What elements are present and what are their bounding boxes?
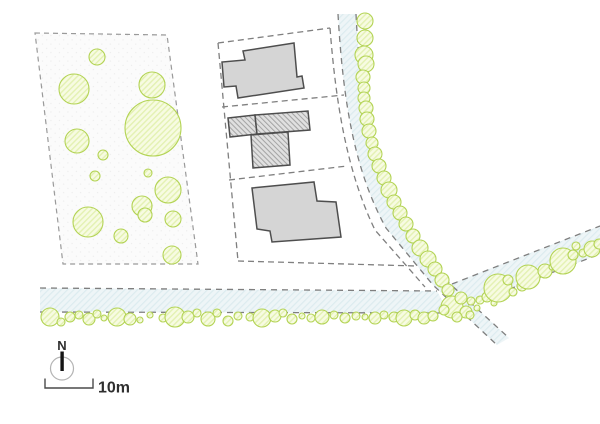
- parcels-layer: [35, 33, 198, 264]
- tree: [428, 311, 438, 321]
- tree: [503, 275, 513, 285]
- tree: [455, 292, 467, 304]
- tree: [165, 211, 181, 227]
- tree: [101, 315, 107, 321]
- main-road-surface: [40, 288, 449, 313]
- scale-bracket: [45, 379, 93, 389]
- building-south: [252, 182, 341, 242]
- tree: [572, 242, 580, 250]
- tree: [234, 312, 242, 320]
- tree: [594, 239, 600, 249]
- tree: [75, 311, 83, 319]
- tree: [439, 305, 449, 315]
- tree: [380, 311, 388, 319]
- wooded-parcel: [35, 33, 198, 264]
- tree: [90, 171, 100, 181]
- tree: [73, 207, 103, 237]
- tree: [114, 229, 128, 243]
- tree: [467, 297, 475, 305]
- tree: [474, 305, 480, 311]
- tree: [340, 313, 350, 323]
- tree: [59, 74, 89, 104]
- block-bottom-boundary: [238, 261, 417, 266]
- north-label: N: [57, 338, 66, 353]
- north-arrow: N: [51, 338, 74, 380]
- tree: [124, 313, 136, 325]
- tree: [182, 311, 194, 323]
- tree: [98, 150, 108, 160]
- tree: [330, 311, 338, 319]
- tree: [93, 310, 101, 318]
- tree: [253, 309, 271, 327]
- lot-divider-south: [229, 166, 347, 180]
- building-north: [222, 43, 304, 98]
- tree: [65, 312, 75, 322]
- tree: [147, 312, 153, 318]
- tree: [568, 250, 578, 260]
- tree: [358, 56, 374, 72]
- compass-needle-icon: [60, 352, 63, 372]
- tree: [287, 314, 297, 324]
- tree: [57, 318, 65, 326]
- tree: [137, 317, 143, 323]
- tree: [357, 30, 373, 46]
- tree: [396, 310, 412, 326]
- tree: [466, 311, 474, 319]
- tree: [315, 310, 329, 324]
- tree: [442, 284, 454, 296]
- building-middle-stem: [251, 132, 290, 168]
- building-middle-bar-east: [255, 111, 310, 134]
- tree: [357, 13, 373, 29]
- tree: [139, 72, 165, 98]
- scale-bar: 10m: [45, 379, 130, 397]
- tree: [89, 49, 105, 65]
- site-plan-canvas: N 10m: [0, 0, 600, 424]
- tree: [65, 129, 89, 153]
- tree: [279, 309, 287, 317]
- tree: [352, 312, 360, 320]
- tree: [362, 124, 376, 138]
- block-top-boundary: [218, 28, 330, 43]
- tree: [516, 265, 540, 289]
- tree: [138, 208, 152, 222]
- tree: [193, 309, 201, 317]
- tree: [223, 316, 233, 326]
- tree-group-north-road: [355, 13, 454, 296]
- tree: [144, 169, 152, 177]
- tree: [163, 246, 181, 264]
- tree: [155, 177, 181, 203]
- tree: [369, 312, 381, 324]
- tree: [362, 314, 368, 320]
- tree: [125, 100, 181, 156]
- site-plan-drawing: N 10m: [0, 0, 600, 424]
- buildings-layer: [222, 43, 341, 242]
- tree: [452, 312, 462, 322]
- tree: [41, 308, 59, 326]
- tree: [509, 288, 517, 296]
- tree: [299, 313, 305, 319]
- tree: [307, 314, 315, 322]
- scale-label: 10m: [98, 380, 130, 397]
- tree: [108, 308, 126, 326]
- building-middle-bar-west: [228, 115, 257, 137]
- tree: [213, 309, 221, 317]
